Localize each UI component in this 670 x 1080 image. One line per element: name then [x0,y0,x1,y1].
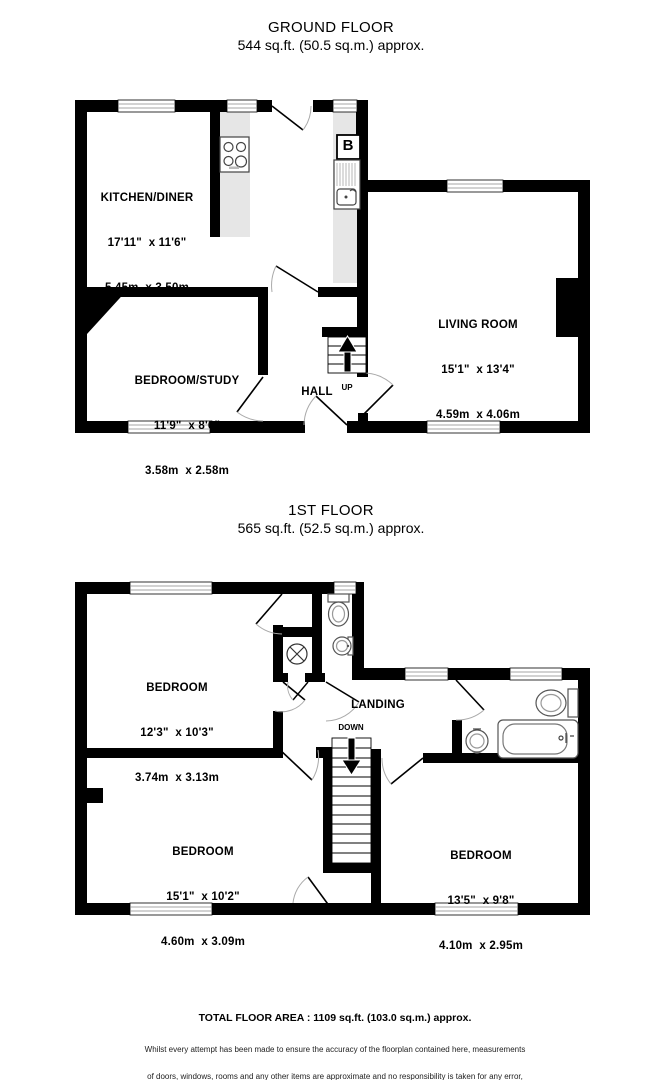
room-dims-metric: 4.60m x 3.09m [161,935,245,950]
room-label-bedroom-top: BEDROOM 12'3" x 10'3" 3.74m x 3.13m [135,651,219,816]
room-label-living-room: LIVING ROOM 15'1" x 13'4" 4.59m x 4.06m [436,288,520,453]
boiler-label: B [343,138,354,153]
door-icon [272,106,311,130]
first-floor-title: 1ST FLOOR [288,503,374,518]
disclaimer-line: Whilst every attempt has been made to en… [143,1045,528,1054]
room-name: BEDROOM [439,849,523,864]
floorplan-page: GROUND FLOOR 544 sq.ft. (50.5 sq.m.) app… [0,0,670,1080]
window-icon [447,180,503,192]
stairs-up-icon [328,336,366,373]
door-icon [363,373,393,415]
window-icon [118,100,175,112]
shower-icon [287,644,307,664]
ground-floor-subtitle: 544 sq.ft. (50.5 sq.m.) approx. [238,38,425,53]
room-dims-metric: 3.74m x 3.13m [135,771,219,786]
room-label-landing: LANDING [351,698,405,713]
basin-icon [333,637,353,655]
sink-icon [334,160,360,209]
room-label-bedroom-right: BEDROOM 13'5" x 9'8" 4.10m x 2.95m [439,819,523,984]
room-label-bedroom-left: BEDROOM 15'1" x 10'2" 4.60m x 3.09m [161,815,245,980]
disclaimer-line: of doors, windows, rooms and any other i… [143,1072,528,1080]
room-name: BEDROOM [161,845,245,860]
toilet-icon [328,594,349,626]
window-icon [510,668,562,680]
door-icon [304,396,347,425]
window-icon [405,668,448,680]
stairs-down-label: DOWN [338,720,363,735]
window-icon [130,582,212,594]
room-name: BEDROOM [135,681,219,696]
stairs-down-icon [332,738,371,863]
room-dims-imperial: 17'11" x 11'6" [101,236,194,251]
door-icon [275,682,305,712]
room-dims-imperial: 13'5" x 9'8" [439,894,523,909]
room-dims-imperial: 12'3" x 10'3" [135,726,219,741]
door-icon [272,266,318,292]
window-icon [334,582,356,594]
stairs-up-label: UP [341,380,352,395]
door-icon [237,377,263,421]
room-dims-imperial: 11'9" x 8'6" [135,419,240,434]
hob-icon [220,137,249,172]
room-label-kitchen-diner: KITCHEN/DINER 17'11" x 11'6" 5.45m x 3.5… [101,161,194,326]
room-dims-metric: 3.58m x 2.58m [135,464,240,479]
basin-icon [466,729,488,753]
room-dims-metric: 4.59m x 4.06m [436,408,520,423]
room-dims-imperial: 15'1" x 13'4" [436,363,520,378]
door-icon [456,680,484,720]
room-name: KITCHEN/DINER [101,191,194,206]
door-icon [293,877,330,907]
room-dims-metric: 5.45m x 3.50m [101,281,194,296]
room-name: LIVING ROOM [436,318,520,333]
total-floor-area: TOTAL FLOOR AREA : 1109 sq.ft. (103.0 sq… [199,1011,472,1026]
door-icon [382,758,423,784]
room-label-hall: HALL [301,385,332,400]
first-floor-subtitle: 565 sq.ft. (52.5 sq.m.) approx. [238,521,425,536]
disclaimer: Whilst every attempt has been made to en… [143,1027,528,1080]
room-dims-imperial: 15'1" x 10'2" [161,890,245,905]
room-dims-metric: 4.10m x 2.95m [439,939,523,954]
room-label-bedroom-study: BEDROOM/STUDY 11'9" x 8'6" 3.58m x 2.58m [135,344,240,509]
ground-doors [237,106,393,425]
toilet-icon [536,689,578,717]
door-icon [288,682,308,700]
room-name: BEDROOM/STUDY [135,374,240,389]
window-icon [227,100,257,112]
bath-icon [498,720,578,758]
window-icon [333,100,357,112]
door-icon [278,748,319,780]
ground-floor-title: GROUND FLOOR [268,20,394,35]
